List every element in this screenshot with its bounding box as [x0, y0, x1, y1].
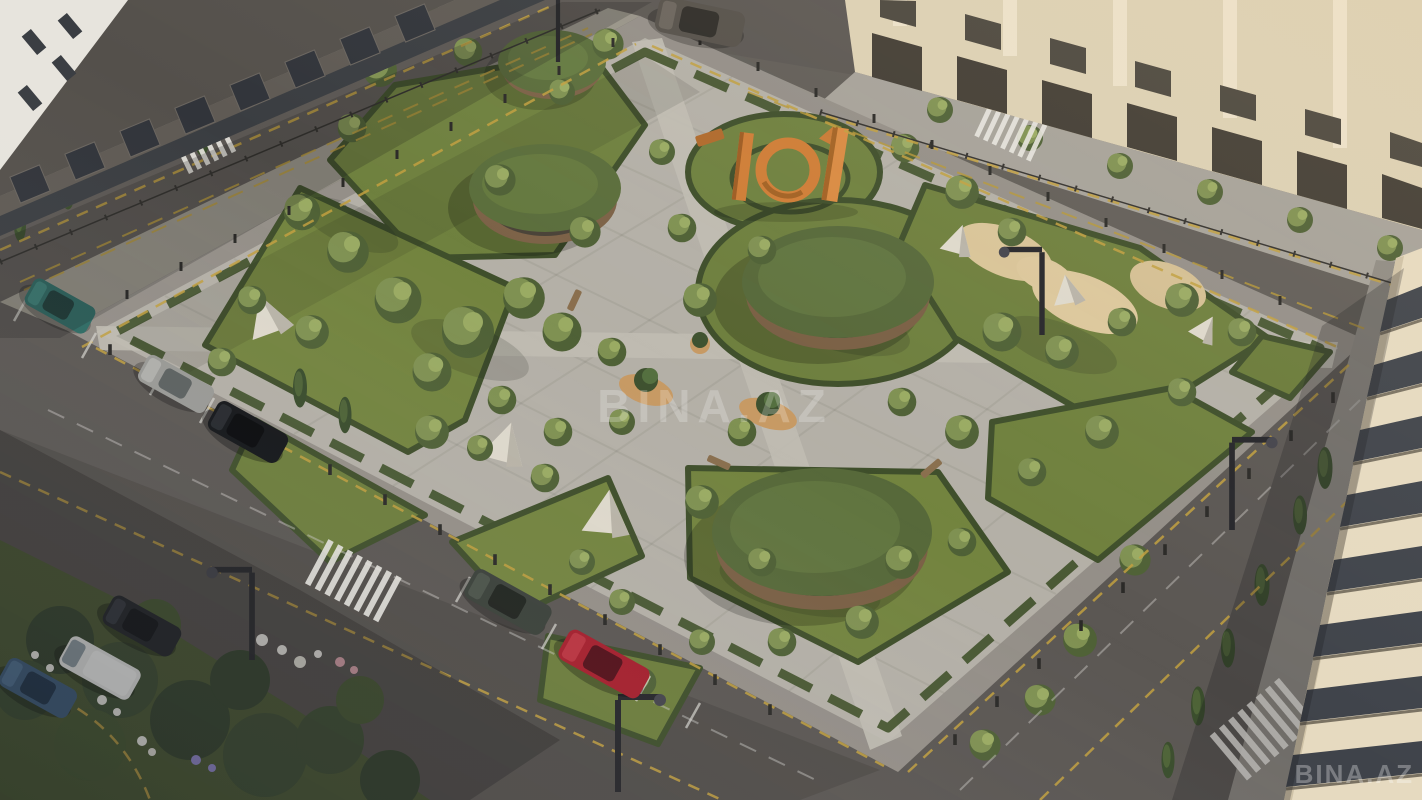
sunlight-wash — [0, 0, 1422, 800]
scene-render — [0, 0, 1422, 800]
render-viewport: BINA.AZ BINA.AZ — [0, 0, 1422, 800]
